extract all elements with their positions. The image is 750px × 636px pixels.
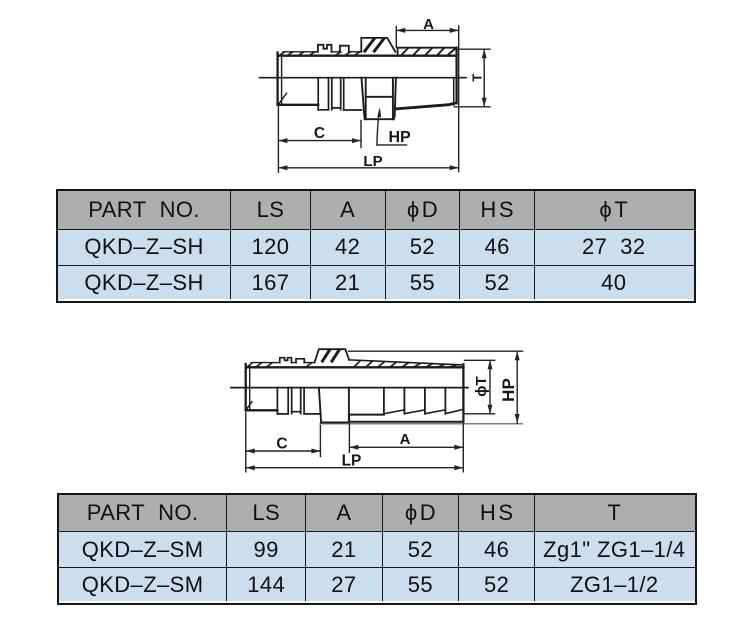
svg-text:T: T [469,74,484,82]
svg-text:A: A [423,16,434,33]
svg-text:LP: LP [342,453,362,470]
svg-text:C: C [314,125,325,142]
svg-text:HP: HP [389,129,412,146]
svg-text:HP: HP [499,378,518,402]
svg-text:LP: LP [363,153,382,170]
svg-text:A: A [400,431,411,448]
svg-text:ϕT: ϕT [473,376,490,396]
svg-text:C: C [276,435,287,452]
